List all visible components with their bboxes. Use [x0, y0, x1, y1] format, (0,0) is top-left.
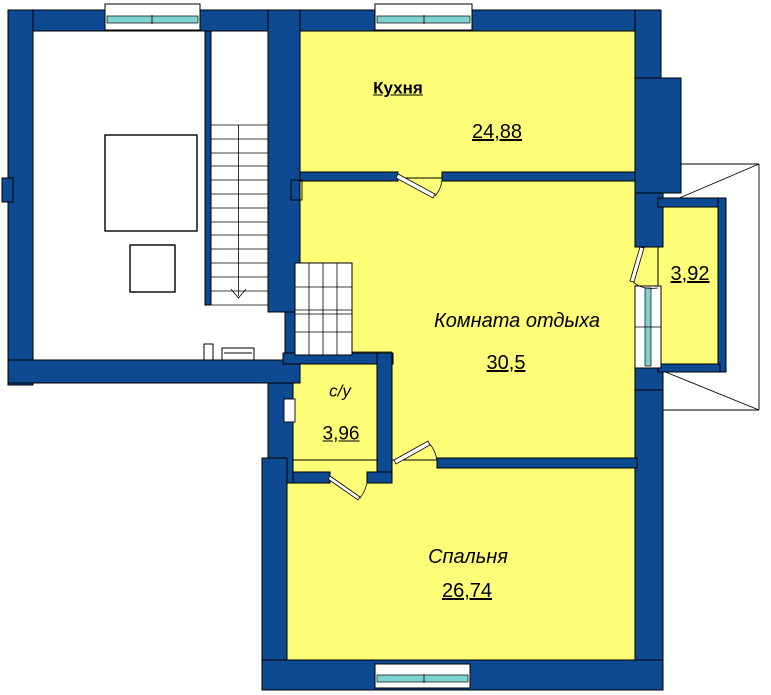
wall-balcony-right	[718, 198, 726, 372]
window-garage-glass	[107, 16, 198, 23]
label-lounge-area: 30,5	[487, 353, 526, 373]
wall-garage-bottom	[8, 360, 300, 383]
label-kitchen-area: 24,88	[472, 122, 522, 142]
label-bathroom-area: 3,96	[323, 425, 360, 444]
window-bedroom-glass	[377, 675, 468, 682]
room-kitchen-floor	[299, 30, 636, 180]
floor-plan-drawing	[0, 0, 771, 695]
label-bedroom-name: Спальня	[428, 547, 508, 567]
wall-balcony-bottom	[658, 364, 720, 372]
furniture-large-square	[105, 135, 197, 231]
wall-right-bump	[635, 78, 681, 193]
floor-plan: Кухня 24,88 Комната отдыха 30,5 с/у 3,96…	[0, 0, 771, 695]
wall-kitchen-divider-left	[300, 172, 398, 181]
window-kitchen-glass	[377, 16, 470, 23]
wall-bedroom-top	[437, 458, 637, 468]
label-bathroom-name: с/у	[329, 383, 351, 400]
wall-niche-bathroom	[284, 399, 295, 422]
wall-garage-stair	[205, 31, 211, 305]
wall-balcony-top	[658, 198, 720, 207]
wall-bathroom-right	[377, 353, 392, 483]
garage-furniture	[105, 135, 197, 292]
main-staircase	[211, 125, 268, 305]
wall-right-top	[635, 10, 661, 78]
left-wall-niche	[2, 178, 13, 202]
wall-kitchen-divider-right	[442, 172, 637, 181]
balcony-diagonal-bottom	[663, 371, 759, 410]
label-bedroom-area: 26,74	[442, 581, 492, 601]
wall-top-right	[300, 10, 661, 31]
room-balcony-floor	[658, 202, 722, 370]
hall-furniture	[204, 344, 254, 360]
wall-bathroom-bottom-stub	[367, 472, 392, 483]
label-lounge-name: Комната отдыха	[434, 311, 600, 331]
furniture-bench	[222, 348, 254, 360]
wall-bedroom-right	[635, 390, 663, 690]
furniture-item	[204, 344, 213, 360]
wall-bedroom-left	[262, 458, 287, 690]
furniture-small-square	[130, 245, 175, 292]
label-balcony-area: 3,92	[671, 264, 710, 284]
label-kitchen-name: Кухня	[373, 80, 423, 97]
